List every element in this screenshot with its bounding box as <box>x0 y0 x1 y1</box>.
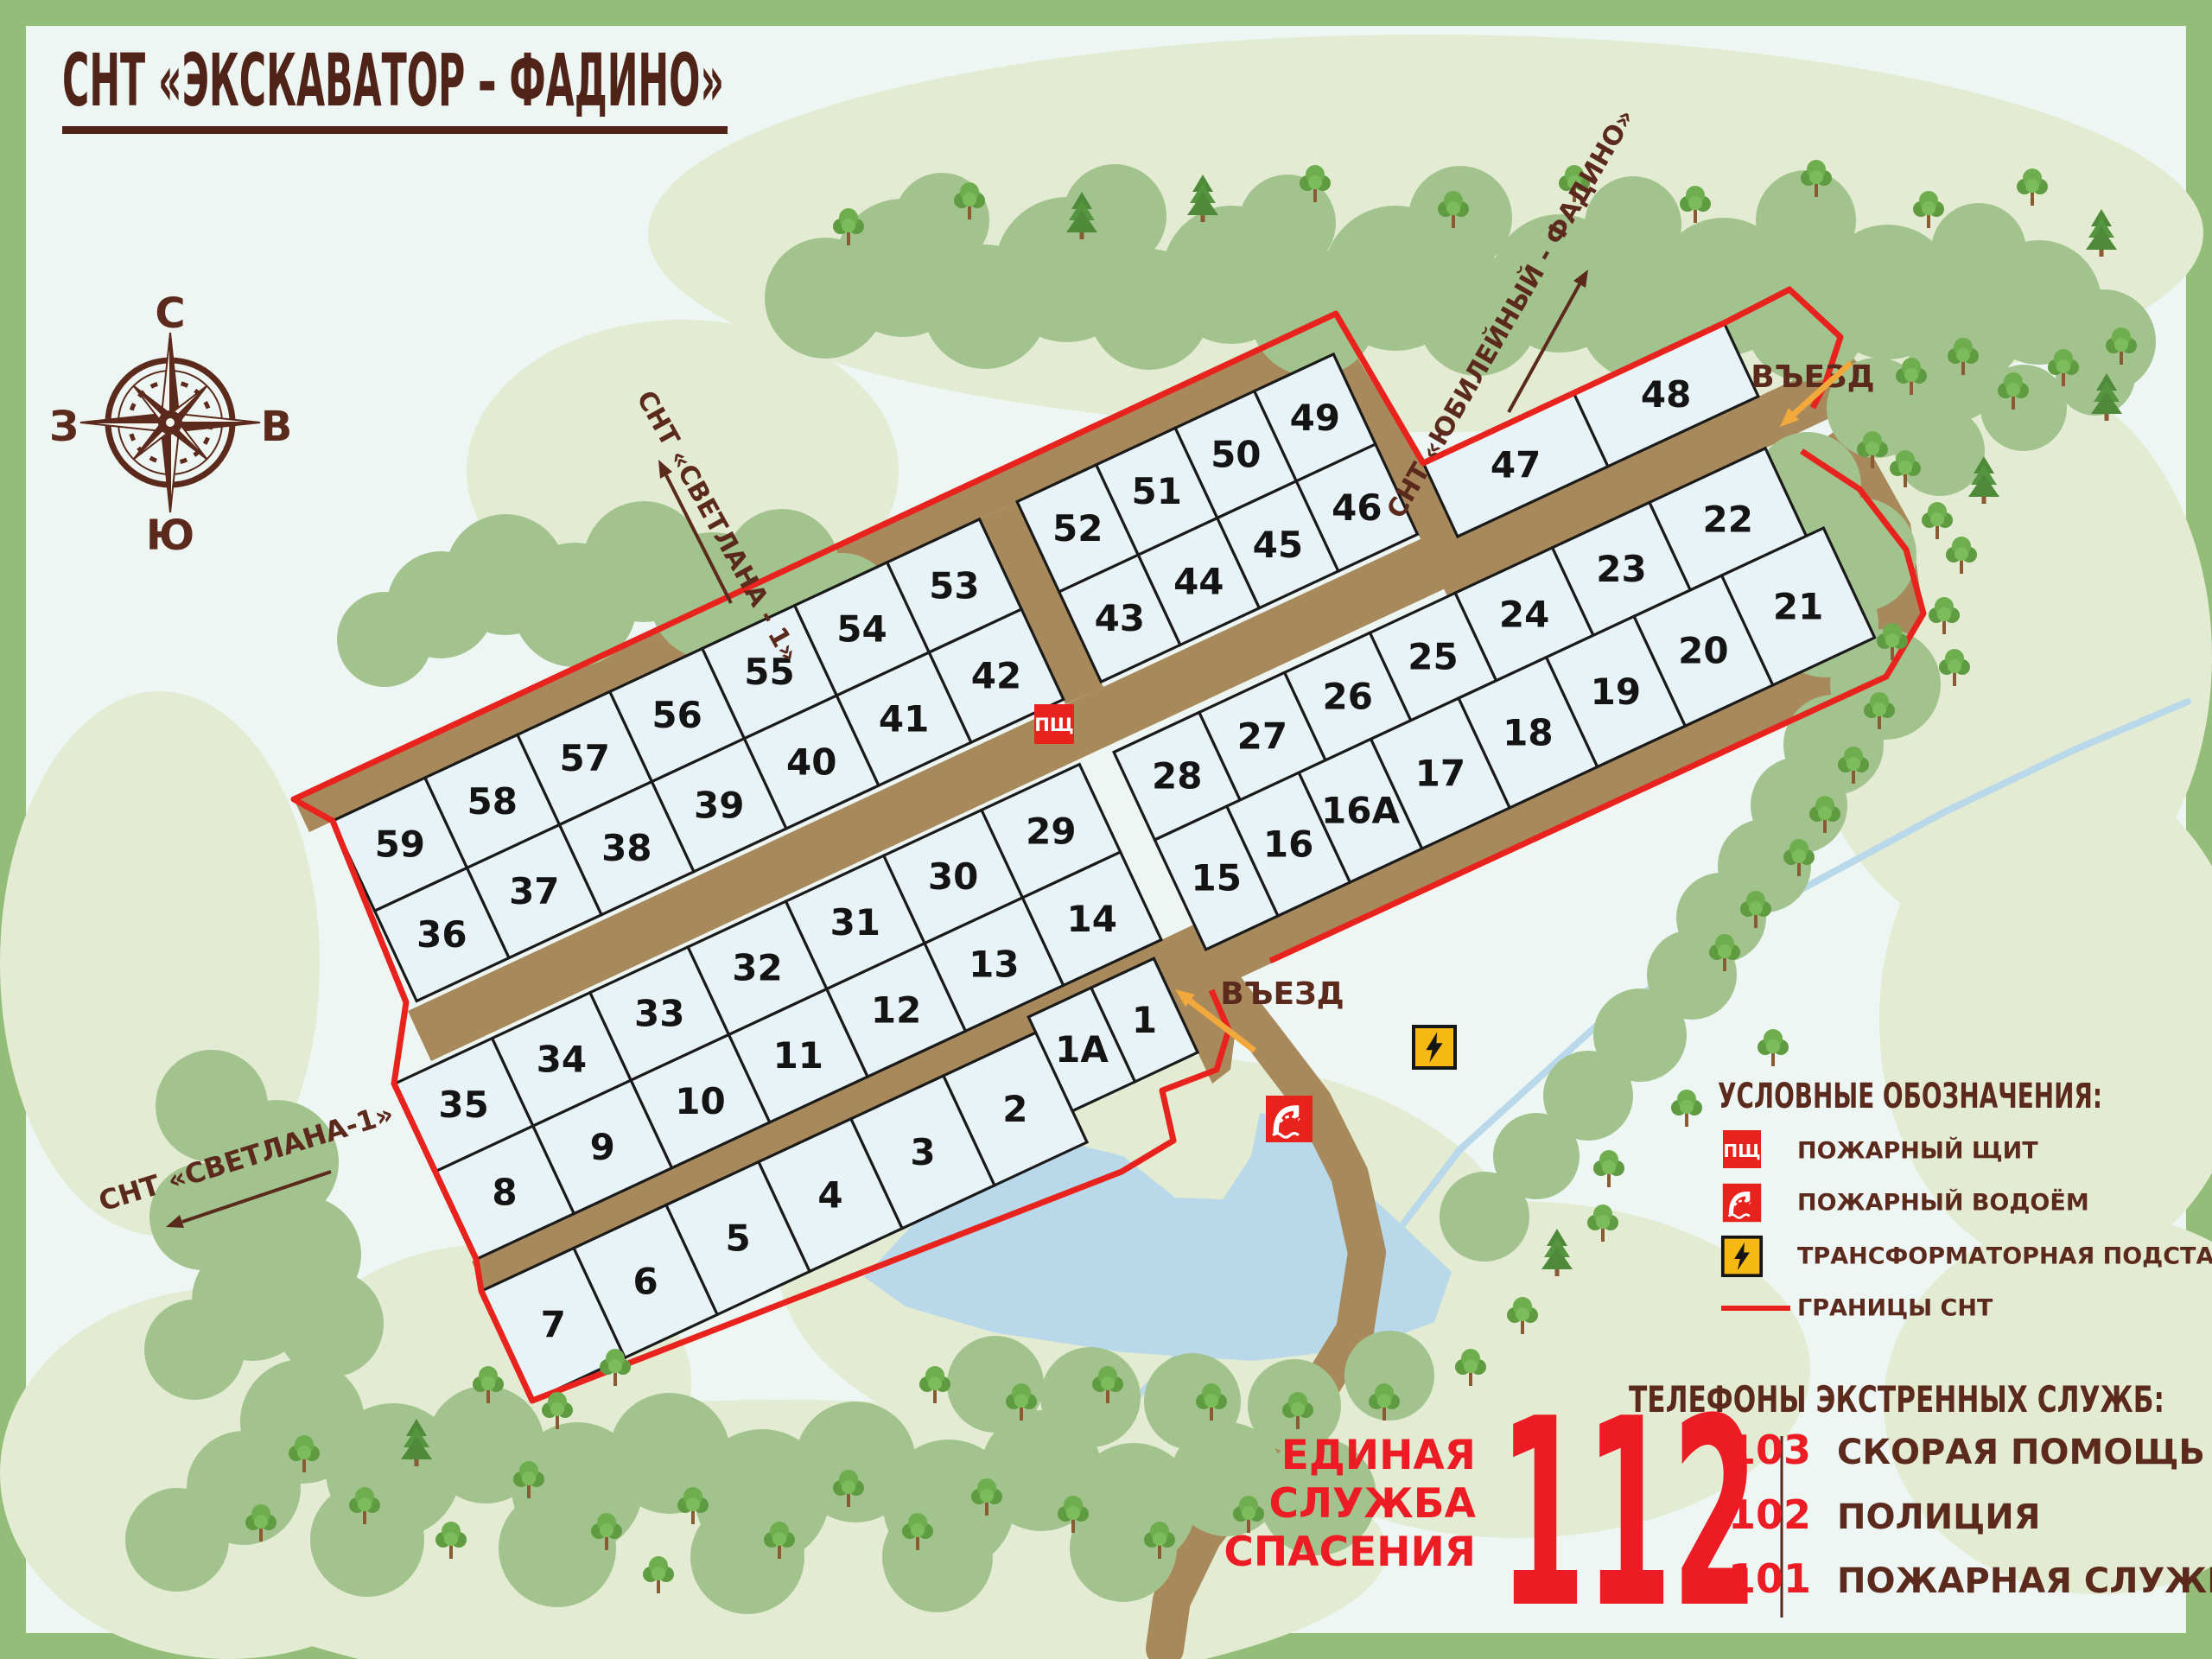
plot-label: 51 <box>1131 470 1181 512</box>
plot-label: 15 <box>1191 857 1241 899</box>
tree-canopy <box>882 1502 993 1612</box>
compass-north-label: С <box>155 289 185 338</box>
plot-label: 52 <box>1052 507 1103 550</box>
plot-label: 7 <box>541 1303 566 1345</box>
plot-label: 53 <box>929 565 979 607</box>
legend-title: УСЛОВНЫЕ ОБОЗНАЧЕНИЯ: <box>1718 1077 2102 1116</box>
plot-label: 14 <box>1066 898 1116 940</box>
unified-line: СЛУЖБА <box>1269 1480 1477 1528</box>
unified-number: 112 <box>1499 1363 1758 1659</box>
plot-label: 6 <box>632 1260 658 1302</box>
service-code: 103 <box>1728 1427 1811 1473</box>
page-title: СНТ «ЭКСКАВАТОР – ФАДИНО» <box>62 38 724 123</box>
plot-label: 19 <box>1591 671 1641 713</box>
tree-canopy <box>1931 203 2026 298</box>
tree-canopy <box>1440 1172 1529 1262</box>
tree-canopy <box>1040 1347 1141 1447</box>
plot-label: 24 <box>1499 593 1549 635</box>
plot-label: 48 <box>1641 373 1691 416</box>
plot-label: 10 <box>675 1080 725 1122</box>
plot-label: 13 <box>969 944 1019 986</box>
plot-label: 12 <box>871 988 921 1031</box>
service-code: 101 <box>1728 1555 1811 1602</box>
tree-canopy <box>690 1500 804 1614</box>
service-label: ПОЖАРНАЯ СЛУЖБА <box>1837 1561 2212 1601</box>
plot-label: 54 <box>836 607 887 650</box>
service-code: 102 <box>1728 1491 1811 1538</box>
fire-shield-icon-text: ПЩ <box>1723 1141 1760 1161</box>
tree-canopy <box>1980 365 2067 451</box>
plot-label: 25 <box>1408 636 1458 678</box>
plot-label: 31 <box>830 901 880 944</box>
plot-label: 3 <box>910 1131 935 1173</box>
fire-pond-icon <box>1723 1184 1761 1222</box>
plot-label: 44 <box>1173 560 1224 602</box>
plot-label: 9 <box>590 1126 615 1168</box>
plot-label: 32 <box>732 947 782 989</box>
plot-label: 43 <box>1095 597 1145 639</box>
service-label: ПОЛИЦИЯ <box>1837 1497 2041 1537</box>
plot-label: 59 <box>375 823 425 866</box>
plot-label: 49 <box>1290 397 1340 439</box>
plot-label: 16А <box>1321 790 1400 832</box>
plot-label: 39 <box>694 784 744 826</box>
plot-label: 1 <box>1132 999 1157 1041</box>
plot-label: 34 <box>537 1038 587 1080</box>
plot-label: 40 <box>786 741 836 783</box>
plot-label: 46 <box>1332 486 1382 529</box>
legend-label: ТРАНСФОРМАТОРНАЯ ПОДСТАНЦИЯ <box>1797 1243 2212 1270</box>
legend-label: ПОЖАРНЫЙ ЩИТ <box>1797 1137 2038 1165</box>
plot-label: 42 <box>971 655 1021 697</box>
plot-label: 5 <box>725 1217 750 1260</box>
plot-label: 45 <box>1253 524 1303 566</box>
map-label: ВЪЕЗД <box>1220 976 1344 1012</box>
fire-shield-marker: ПЩ <box>1034 704 1074 744</box>
tree-canopy <box>1408 166 1512 270</box>
plot-label: 28 <box>1152 755 1202 798</box>
plot-label: 16 <box>1263 823 1313 866</box>
plot-label: 2 <box>1002 1088 1027 1130</box>
plot-label: 4 <box>817 1174 842 1217</box>
plot-label: 58 <box>467 780 517 823</box>
compass-west-label: З <box>49 403 79 451</box>
fire-pond-icon <box>1266 1096 1313 1142</box>
unified-line: СПАСЕНИЯ <box>1224 1529 1476 1576</box>
transformer-icon <box>1723 1237 1761 1275</box>
plot-label: 36 <box>416 913 467 956</box>
plot-label: 21 <box>1773 586 1823 628</box>
snt-map: 5958575655545336373839404142525150494344… <box>0 0 2212 1659</box>
service-label: СКОРАЯ ПОМОЩЬ <box>1837 1433 2205 1472</box>
transformer-icon <box>1414 1027 1455 1068</box>
map-label: ВЪЕЗД <box>1751 359 1875 395</box>
tree-canopy <box>337 592 432 687</box>
fire-shield-label: ПЩ <box>1034 715 1073 735</box>
legend-label: ГРАНИЦЫ СНТ <box>1797 1295 1993 1322</box>
plot-label: 20 <box>1678 630 1728 672</box>
tree-canopy <box>947 1336 1044 1433</box>
plot-label: 8 <box>492 1172 517 1214</box>
plot-label: 33 <box>634 993 684 1035</box>
plot-label: 56 <box>652 694 702 736</box>
plot-label: 30 <box>928 855 978 898</box>
unified-line: ЕДИНАЯ <box>1281 1432 1476 1479</box>
plot-label: 35 <box>438 1084 488 1126</box>
plot-label: 26 <box>1322 676 1372 718</box>
plot-label: 38 <box>601 827 652 869</box>
compass-south-label: Ю <box>146 512 194 560</box>
plot-label: 1А <box>1055 1028 1109 1071</box>
plot-label: 27 <box>1237 715 1287 758</box>
compass-hub-center <box>166 418 175 427</box>
plan-poster: 5958575655545336373839404142525150494344… <box>0 0 2212 1659</box>
plot-label: 29 <box>1026 810 1076 852</box>
plot-label: 47 <box>1491 443 1541 486</box>
plot-label: 18 <box>1503 711 1553 753</box>
plot-label: 50 <box>1211 434 1261 476</box>
plot-label: 23 <box>1596 548 1646 590</box>
plot-label: 22 <box>1702 498 1752 540</box>
plot-label: 17 <box>1415 753 1465 795</box>
legend-label: ПОЖАРНЫЙ ВОДОЁМ <box>1797 1189 2089 1217</box>
plot-label: 57 <box>559 737 609 779</box>
plot-label: 37 <box>509 870 559 912</box>
title-underline <box>62 126 728 134</box>
tree-canopy <box>125 1488 229 1592</box>
tree-canopy <box>499 1490 616 1607</box>
plot-label: 11 <box>773 1034 823 1077</box>
tree-canopy <box>144 1300 245 1400</box>
compass-east-label: В <box>261 403 293 451</box>
plot-label: 41 <box>879 698 929 741</box>
